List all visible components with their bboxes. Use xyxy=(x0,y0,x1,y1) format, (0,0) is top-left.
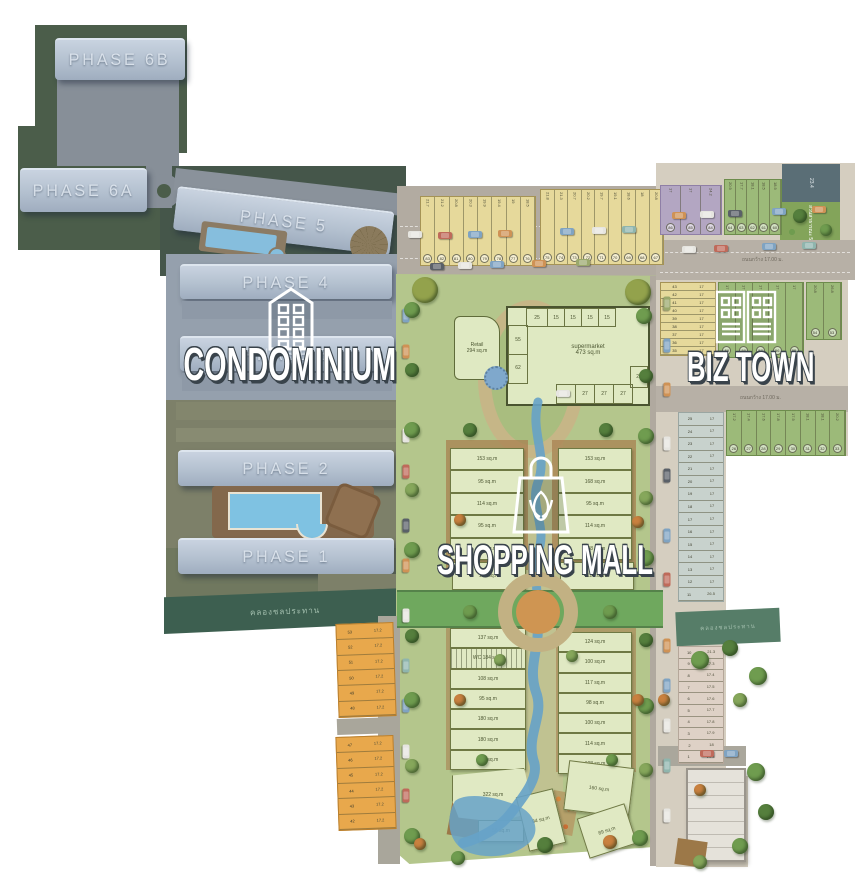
condo-roundabout-center xyxy=(157,184,171,198)
lot: 18.132 xyxy=(816,411,831,455)
lot: 20.881 xyxy=(450,197,464,265)
road-sw xyxy=(337,717,398,735)
biz-town-title[interactable]: BIZ TOWN xyxy=(658,348,844,386)
parked-car xyxy=(490,261,504,268)
building-phase-1: PHASE 1 xyxy=(178,538,394,574)
tree xyxy=(606,754,618,766)
tree xyxy=(603,605,617,619)
lot: 617.6 xyxy=(679,693,723,705)
lot: 1417 xyxy=(679,551,723,564)
parked-car xyxy=(403,559,410,573)
tree xyxy=(405,483,419,497)
shopping-bag-icon[interactable] xyxy=(506,452,576,536)
shopping-mall-title[interactable]: SHOPPING MALL xyxy=(420,540,670,580)
supermarket-cell: 27 xyxy=(595,384,614,404)
parked-car xyxy=(468,231,482,238)
lot: 2217 xyxy=(679,451,723,464)
parked-car xyxy=(802,242,816,249)
lot: 1868 xyxy=(636,190,650,264)
biz-road-1-label: ถนนกว้าง 17.00 ม. xyxy=(742,256,783,264)
master-plan-map: PHASE 6B PHASE 6A PHASE 5 PHASE 4 PHASE … xyxy=(0,0,855,877)
tree xyxy=(632,694,644,706)
parked-car xyxy=(622,226,636,233)
tree xyxy=(405,629,419,643)
lot: 1517 xyxy=(679,538,723,551)
shop: 98 sq.m xyxy=(558,693,632,713)
tree xyxy=(404,542,420,558)
lot-strip-green-row3: 17.22617.42717.62817.82917.93018.13118.1… xyxy=(726,410,846,456)
supermarket-cell: 55 xyxy=(508,325,528,355)
tree xyxy=(412,277,438,303)
lot: 517.7 xyxy=(679,705,723,717)
lot: 1217 xyxy=(679,576,723,589)
shop: 180 sq.m xyxy=(450,729,526,749)
tree xyxy=(454,514,466,526)
lot: 717.5 xyxy=(679,682,723,694)
supermarket-cell: 15 xyxy=(599,308,616,327)
lot: 17.427 xyxy=(742,411,757,455)
lot: 20.233 xyxy=(830,411,845,455)
parked-car xyxy=(664,759,671,773)
lot: 1785 xyxy=(681,186,701,234)
lot: 3917 xyxy=(661,315,715,323)
biz-town-title-text: BIZ TOWN xyxy=(687,343,815,391)
shop: 58 sq.m xyxy=(478,820,524,842)
parked-car xyxy=(403,465,410,479)
lot: 18.162 xyxy=(747,180,758,234)
lot: 2117 xyxy=(679,463,723,476)
condominium-title[interactable]: CONDOMINIUM xyxy=(168,344,412,386)
parked-car xyxy=(672,212,686,219)
parked-car xyxy=(403,609,410,623)
tree xyxy=(722,640,738,656)
parked-car xyxy=(664,297,671,311)
supermarket-building: 25 15 15 15 15 55 62 29 25 27 27 27 supe… xyxy=(506,306,650,406)
tree xyxy=(694,784,706,796)
supermarket-cell: 25 xyxy=(526,308,548,327)
mall-pond xyxy=(484,366,508,390)
lot-strip-vertical: 2517241723172217211720171917181717171617… xyxy=(678,412,724,602)
tree xyxy=(463,605,477,619)
supermarket-area: 473 sq.m xyxy=(548,350,628,356)
tree xyxy=(599,423,613,437)
tree xyxy=(638,428,654,444)
lot: 1817 xyxy=(679,501,723,514)
lot: 26.853 xyxy=(824,283,841,339)
lot: 20.964 xyxy=(725,180,736,234)
tree xyxy=(632,830,648,846)
supermarket-cell: 15 xyxy=(565,308,582,327)
shop: WC 184 sq.m xyxy=(450,648,526,668)
tree xyxy=(639,491,653,505)
tree xyxy=(758,804,774,820)
lot: 18.131 xyxy=(801,411,816,455)
tree xyxy=(639,633,653,647)
retail-area: 294 sq.m xyxy=(467,348,488,354)
tree xyxy=(463,423,477,437)
shopping-mall-title-text: SHOPPING MALL xyxy=(437,536,653,584)
lot-strip-orange-a: 5317.25217.25117.25017.24917.24817.2 xyxy=(335,622,396,718)
tree xyxy=(747,763,765,781)
parking-line xyxy=(660,272,850,273)
lot: 18.561 xyxy=(759,180,770,234)
phase-2-label: PHASE 2 xyxy=(242,459,330,479)
parked-car xyxy=(812,206,826,213)
building-phase-6a: PHASE 6A xyxy=(20,168,147,212)
parked-car xyxy=(762,243,776,250)
shop: 108 sq.m xyxy=(450,669,526,689)
lot: 21.783 xyxy=(421,197,435,265)
lot: 4317 xyxy=(661,283,715,291)
parked-car xyxy=(408,231,422,238)
parked-car xyxy=(728,210,742,217)
parked-car xyxy=(403,745,410,759)
biz-road-2-label: ถนนกว้าง 17.00 ม. xyxy=(740,394,781,402)
condominium-title-text: CONDOMINIUM xyxy=(184,339,397,391)
tree xyxy=(732,838,748,854)
supermarket-cell: 27 xyxy=(576,384,595,404)
tree xyxy=(733,693,747,707)
lot: 317.9 xyxy=(679,728,723,740)
lot: 17.226 xyxy=(727,411,742,455)
parked-car xyxy=(556,390,570,397)
lot: 1126.5 xyxy=(679,588,723,601)
lot-strip-green-mid2: 20.85426.853 xyxy=(806,282,842,340)
shop: 117 sq.m xyxy=(558,673,632,693)
parked-car xyxy=(700,211,714,218)
parked-car xyxy=(682,246,696,253)
tree xyxy=(404,422,420,438)
lot: 817.4 xyxy=(679,670,723,682)
shop: 180 sq.m xyxy=(450,709,526,729)
lot: 1317 xyxy=(679,563,723,576)
tree xyxy=(625,279,651,305)
tree xyxy=(404,692,420,708)
lot: 24.284 xyxy=(701,186,721,234)
shophouse-icon[interactable] xyxy=(714,286,778,346)
lot: 2417 xyxy=(679,426,723,439)
tree xyxy=(476,754,488,766)
parked-car xyxy=(664,679,671,693)
parked-car xyxy=(403,789,410,803)
tree xyxy=(693,855,707,869)
phase-6a-label: PHASE 6A xyxy=(33,181,135,201)
lot: 2517 xyxy=(679,413,723,426)
lot-strip-purple: 1786178524.284 xyxy=(660,185,722,235)
parked-car xyxy=(700,750,714,757)
building-phase-2: PHASE 2 xyxy=(178,450,394,486)
parked-car xyxy=(664,469,671,483)
tree xyxy=(451,851,465,865)
biz-canal-label: คลองชลประทาน xyxy=(700,621,756,633)
supermarket-cell: 62 xyxy=(508,353,528,384)
lot: 3817 xyxy=(661,323,715,331)
parked-car xyxy=(664,719,671,733)
clubhouse-label: 23.4 xyxy=(808,178,814,188)
lot: 4817.2 xyxy=(339,700,396,717)
tree xyxy=(603,835,617,849)
lot: 17.829 xyxy=(771,411,786,455)
lot-strip-orange-b: 4717.24617.24517.24417.24317.24217.2 xyxy=(335,735,396,831)
tree xyxy=(639,369,653,383)
parked-car xyxy=(458,262,472,269)
lot: 4217.2 xyxy=(339,813,396,830)
lot: 2017 xyxy=(679,476,723,489)
lot: 17.930 xyxy=(786,411,801,455)
shop: 114 sq.m xyxy=(558,733,632,753)
tree xyxy=(820,224,832,236)
parked-car xyxy=(403,659,410,673)
parked-car xyxy=(664,809,671,823)
phase-6b-label: PHASE 6B xyxy=(69,50,171,70)
parked-car xyxy=(498,230,512,237)
parked-car xyxy=(438,232,452,239)
lot: 18.576 xyxy=(521,197,535,265)
tree xyxy=(691,651,709,669)
tree xyxy=(494,654,506,666)
parked-car xyxy=(403,519,410,533)
parked-car xyxy=(560,228,574,235)
lot: 20.854 xyxy=(807,283,824,339)
lot: 1917 xyxy=(679,488,723,501)
tree xyxy=(454,694,466,706)
lot: 1786 xyxy=(661,186,681,234)
tree xyxy=(636,308,652,324)
lot: 417.8 xyxy=(679,717,723,729)
tree xyxy=(405,759,419,773)
parked-car xyxy=(664,639,671,653)
tree xyxy=(749,667,767,685)
shop: 100 sq.m xyxy=(558,713,632,733)
tree xyxy=(632,516,644,528)
tree xyxy=(414,838,426,850)
lot: 20.773 xyxy=(568,190,582,264)
tree xyxy=(658,694,670,706)
supermarket-cell: 27 xyxy=(614,384,633,404)
tree xyxy=(793,209,807,223)
tree xyxy=(404,302,420,318)
tree xyxy=(566,650,578,662)
parking-mid-1 xyxy=(176,402,404,420)
supermarket-cell: 15 xyxy=(548,308,565,327)
phase-1-label: PHASE 1 xyxy=(242,547,330,567)
lot: 21.374 xyxy=(555,190,569,264)
tree xyxy=(639,763,653,777)
building-phase-6b: PHASE 6B xyxy=(55,38,185,80)
parked-car xyxy=(532,260,546,267)
parked-car xyxy=(664,437,671,451)
parked-car xyxy=(724,750,738,757)
parking-mid-2 xyxy=(176,428,404,442)
parked-car xyxy=(592,227,606,234)
parked-car xyxy=(576,259,590,266)
clubhouse-block: 23.4 xyxy=(782,164,840,202)
parked-car xyxy=(772,208,786,215)
lot: 18.960 xyxy=(770,180,781,234)
lot: 17.628 xyxy=(757,411,772,455)
parked-car xyxy=(714,245,728,252)
lot-strip-green-ne: 20.96417.76318.16218.56118.960 xyxy=(724,179,782,235)
lot: 2317 xyxy=(679,438,723,451)
supermarket-cell: 15 xyxy=(582,308,599,327)
shop: 122 sq.m xyxy=(450,750,526,770)
lot: 17.763 xyxy=(736,180,747,234)
parked-car xyxy=(430,263,444,270)
lot: 1717 xyxy=(679,513,723,526)
condo-canal-label: คลองชลประทาน xyxy=(250,603,321,618)
lot: 21.875 xyxy=(541,190,555,264)
lot: 19.170 xyxy=(609,190,623,264)
lot: 21.282 xyxy=(435,197,449,265)
tree xyxy=(537,837,553,853)
lot: 1617 xyxy=(679,526,723,539)
